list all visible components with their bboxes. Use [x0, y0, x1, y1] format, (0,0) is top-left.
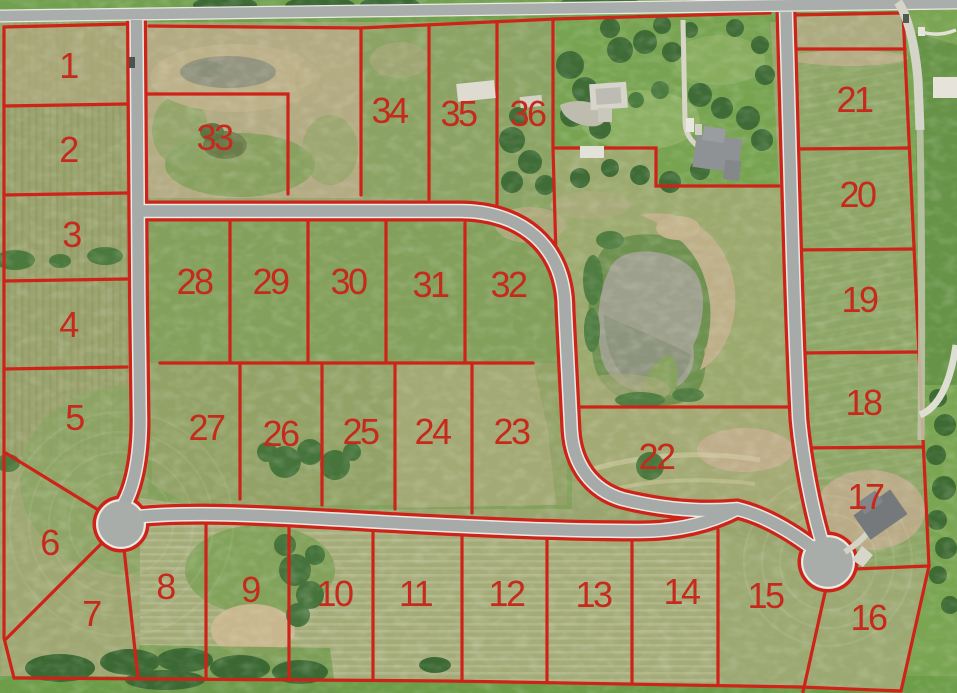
svg-text:35: 35	[440, 93, 477, 134]
svg-text:10: 10	[316, 573, 353, 614]
svg-text:22: 22	[638, 436, 675, 477]
svg-text:36: 36	[509, 93, 546, 134]
svg-text:24: 24	[414, 411, 451, 452]
svg-text:2: 2	[59, 129, 78, 170]
svg-text:16: 16	[850, 597, 887, 638]
svg-text:3: 3	[62, 214, 81, 255]
svg-text:20: 20	[839, 174, 876, 215]
svg-text:19: 19	[841, 279, 878, 320]
svg-text:15: 15	[747, 575, 784, 616]
svg-text:26: 26	[262, 413, 299, 454]
svg-text:28: 28	[176, 261, 213, 302]
svg-text:27: 27	[188, 407, 225, 448]
svg-text:29: 29	[252, 261, 289, 302]
svg-text:17: 17	[847, 476, 884, 517]
svg-text:8: 8	[156, 566, 175, 607]
svg-text:6: 6	[40, 522, 59, 563]
svg-text:4: 4	[59, 304, 78, 345]
svg-text:12: 12	[488, 573, 525, 614]
svg-text:14: 14	[663, 571, 700, 612]
svg-text:5: 5	[65, 397, 84, 438]
svg-text:18: 18	[845, 382, 882, 423]
svg-text:25: 25	[342, 411, 379, 452]
svg-text:23: 23	[493, 411, 530, 452]
svg-text:1: 1	[59, 45, 78, 86]
svg-text:11: 11	[399, 573, 433, 614]
svg-text:7: 7	[82, 593, 101, 634]
svg-text:30: 30	[330, 261, 367, 302]
svg-text:32: 32	[490, 264, 527, 305]
svg-text:34: 34	[371, 90, 408, 131]
svg-text:9: 9	[241, 569, 260, 610]
svg-text:13: 13	[575, 574, 612, 615]
svg-text:33: 33	[196, 117, 233, 158]
svg-text:21: 21	[836, 79, 873, 120]
svg-text:31: 31	[412, 264, 449, 305]
